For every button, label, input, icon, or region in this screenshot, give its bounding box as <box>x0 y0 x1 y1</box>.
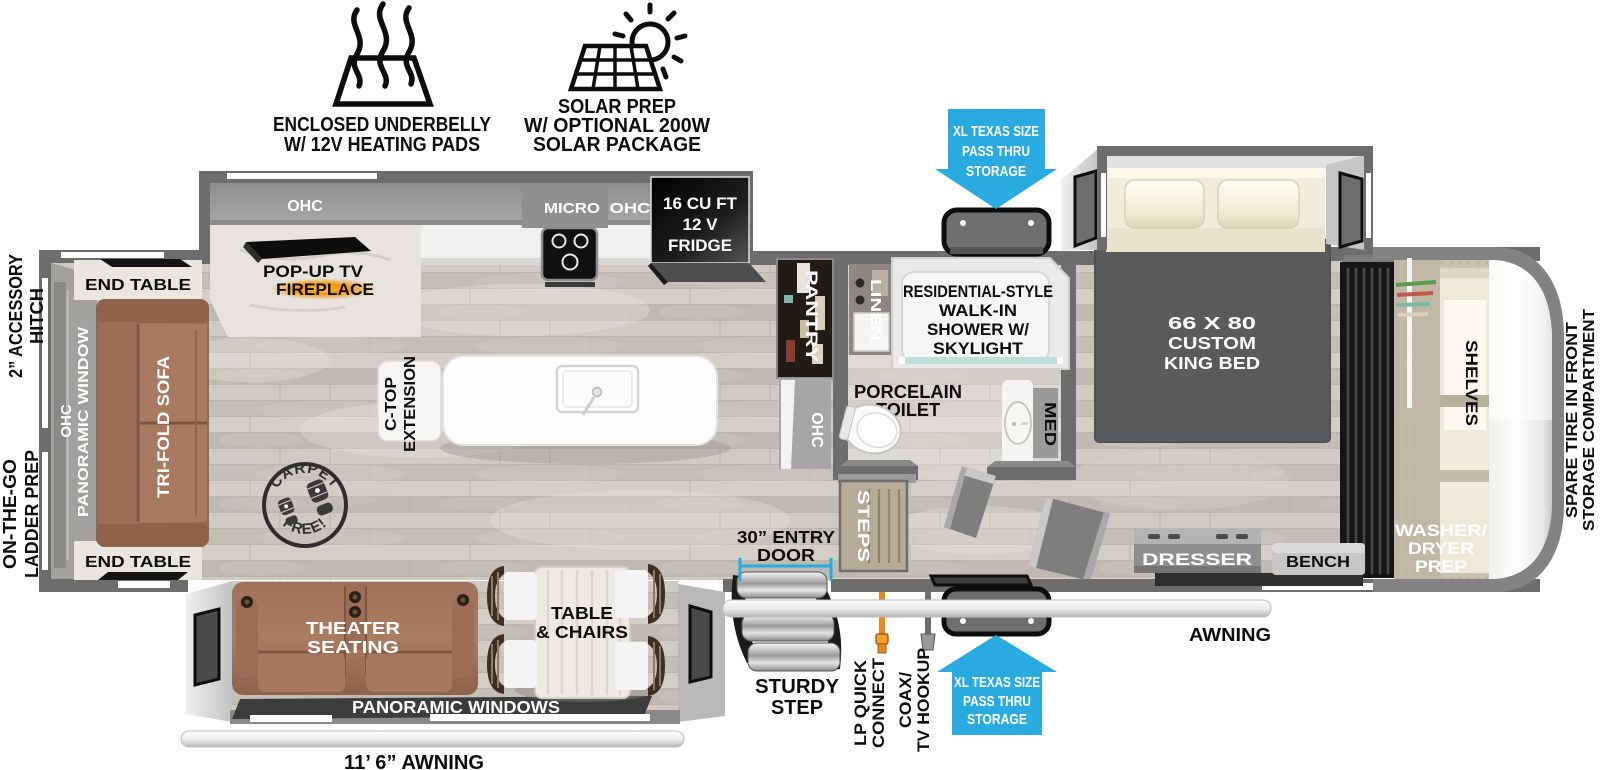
svg-text:C-TOP: C-TOP <box>383 377 400 431</box>
svg-text:OHC: OHC <box>610 200 651 217</box>
svg-text:MED: MED <box>1041 402 1058 446</box>
svg-text:PANORAMIC WINDOW: PANORAMIC WINDOW <box>75 326 92 517</box>
svg-text:2” ACCESSORY: 2” ACCESSORY <box>6 254 26 378</box>
svg-text:POP-UP TV: POP-UP TV <box>263 262 364 281</box>
svg-text:PORCELAIN: PORCELAIN <box>854 382 962 402</box>
svg-text:PANTRY: PANTRY <box>802 270 821 363</box>
svg-text:BENCH: BENCH <box>1286 554 1350 571</box>
svg-text:RESIDENTIAL-STYLE: RESIDENTIAL-STYLE <box>903 283 1053 301</box>
svg-text:SKYLIGHT: SKYLIGHT <box>933 340 1023 358</box>
svg-text:XL TEXAS SIZE: XL TEXAS SIZE <box>954 674 1040 691</box>
svg-text:12 V: 12 V <box>683 215 719 234</box>
svg-text:EXTENSION: EXTENSION <box>402 356 419 452</box>
svg-text:KING BED: KING BED <box>1164 353 1260 373</box>
svg-text:DRYER: DRYER <box>1408 540 1474 558</box>
svg-text:THEATER: THEATER <box>306 618 400 638</box>
svg-text:WASHER/: WASHER/ <box>1395 522 1487 540</box>
svg-text:FRIDGE: FRIDGE <box>668 236 732 255</box>
svg-text:CONNECT: CONNECT <box>870 658 888 748</box>
svg-text:LINEN: LINEN <box>867 279 883 341</box>
svg-text:DRESSER: DRESSER <box>1142 550 1252 569</box>
svg-text:STORAGE: STORAGE <box>966 163 1026 180</box>
svg-text:CUSTOM: CUSTOM <box>1168 333 1256 353</box>
svg-text:ENCLOSED UNDERBELLY: ENCLOSED UNDERBELLY <box>273 114 492 136</box>
svg-text:DOOR: DOOR <box>757 545 815 565</box>
svg-text:SPARE TIRE IN FRONT: SPARE TIRE IN FRONT <box>1564 321 1581 518</box>
svg-text:AWNING: AWNING <box>1189 624 1271 645</box>
svg-text:PREP: PREP <box>1415 558 1467 576</box>
svg-text:XL TEXAS SIZE: XL TEXAS SIZE <box>953 123 1039 140</box>
svg-text:STORAGE COMPARTMENT: STORAGE COMPARTMENT <box>1581 308 1598 531</box>
svg-text:SEATING: SEATING <box>307 637 399 657</box>
svg-text:LADDER PREP: LADDER PREP <box>22 450 42 578</box>
svg-text:STORAGE: STORAGE <box>967 711 1027 728</box>
svg-text:END TABLE: END TABLE <box>85 277 191 294</box>
svg-text:LP QUICK: LP QUICK <box>852 660 870 746</box>
svg-text:MICRO: MICRO <box>544 200 600 217</box>
svg-text:TABLE: TABLE <box>551 603 613 623</box>
svg-text:PASS THRU: PASS THRU <box>963 693 1031 710</box>
svg-text:30” ENTRY: 30” ENTRY <box>737 527 835 547</box>
svg-text:W/ 12V HEATING PADS: W/ 12V HEATING PADS <box>284 134 480 156</box>
svg-text:STEP: STEP <box>771 697 823 719</box>
svg-text:OHC: OHC <box>58 404 75 438</box>
svg-text:16 CU FT: 16 CU FT <box>663 194 738 213</box>
svg-text:SHELVES: SHELVES <box>1462 340 1481 426</box>
svg-text:END TABLE: END TABLE <box>85 554 191 571</box>
svg-text:COAX/: COAX/ <box>897 672 915 728</box>
svg-text:FIREPLACE: FIREPLACE <box>276 280 374 299</box>
svg-text:SHOWER W/: SHOWER W/ <box>927 321 1029 339</box>
svg-text:STURDY: STURDY <box>755 676 840 698</box>
svg-text:TV HOOKUP: TV HOOKUP <box>915 648 933 752</box>
svg-text:HITCH: HITCH <box>27 288 47 344</box>
svg-text:STEPS: STEPS <box>854 490 872 562</box>
svg-text:TRI-FOLD SOFA: TRI-FOLD SOFA <box>154 356 173 498</box>
svg-text:PANORAMIC WINDOWS: PANORAMIC WINDOWS <box>352 697 560 717</box>
svg-text:WALK-IN: WALK-IN <box>939 302 1017 320</box>
svg-text:11’ 6” AWNING: 11’ 6” AWNING <box>344 752 484 770</box>
svg-text:OHC: OHC <box>287 198 323 215</box>
svg-text:OHC: OHC <box>808 412 825 448</box>
svg-text:PASS THRU: PASS THRU <box>962 143 1030 160</box>
svg-text:& CHAIRS: & CHAIRS <box>536 622 628 642</box>
svg-text:66 X 80: 66 X 80 <box>1168 313 1256 333</box>
svg-text:SOLAR PACKAGE: SOLAR PACKAGE <box>533 134 701 156</box>
svg-text:ON-THE-GO: ON-THE-GO <box>0 459 20 569</box>
